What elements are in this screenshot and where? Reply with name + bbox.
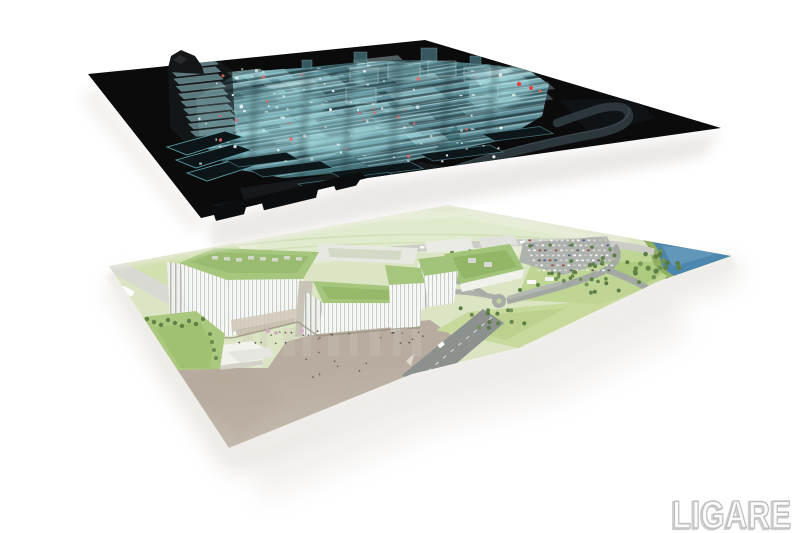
svg-text:LIGARE: LIGARE bbox=[672, 493, 792, 533]
